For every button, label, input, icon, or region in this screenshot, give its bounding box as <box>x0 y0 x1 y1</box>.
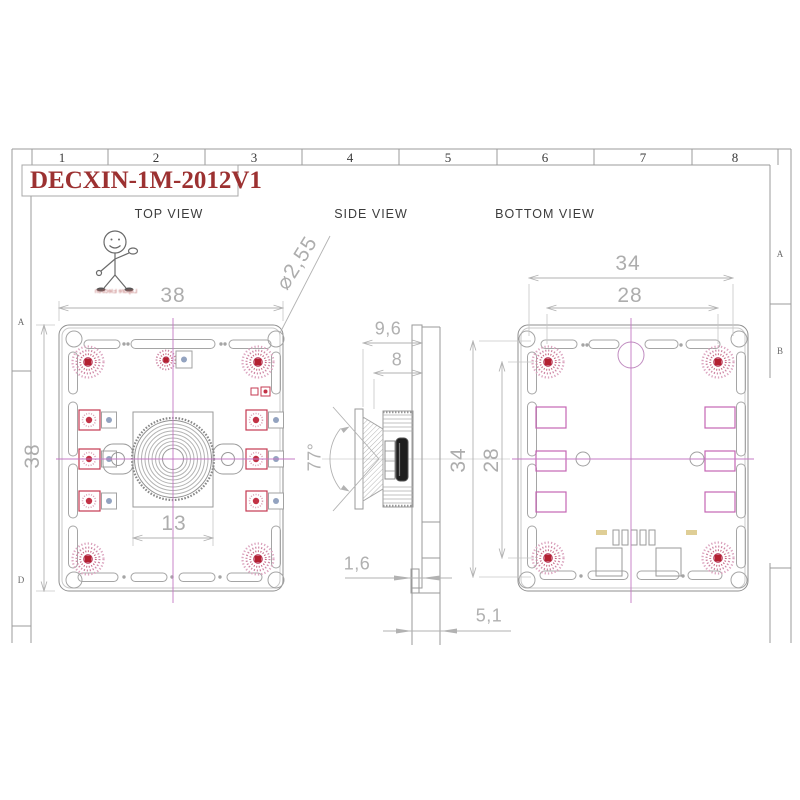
dim-lens-depth: 8 <box>392 350 403 371</box>
sheet-frame <box>12 149 791 643</box>
mount-pad <box>243 544 274 575</box>
dim-pcb-thickness: 1,6 <box>344 554 371 575</box>
dim-fov: 77° <box>305 443 326 472</box>
dim-bottom-outer-h: 34 <box>615 252 640 276</box>
engineering-drawing <box>0 0 800 800</box>
margin-row-a-left: A <box>18 317 25 327</box>
dim-lens-mount-width: 13 <box>161 512 186 536</box>
dim-total-depth: 9,6 <box>375 319 402 340</box>
ruler-col-1: 1 <box>59 150 66 166</box>
top-view-label: TOP VIEW <box>135 207 204 221</box>
side-view-label: SIDE VIEW <box>334 207 408 221</box>
ruler-col-5: 5 <box>445 150 452 166</box>
ruler-col-8: 8 <box>732 150 739 166</box>
mount-pad <box>243 347 274 378</box>
dim-bottom-inner-h: 28 <box>617 284 642 308</box>
silkscreen-mark <box>596 530 607 535</box>
ruler-col-6: 6 <box>542 150 549 166</box>
dim-bottom-inner-v: 28 <box>480 447 504 472</box>
bottom-view-label: BOTTOM VIEW <box>495 207 595 221</box>
connector-footprint <box>596 530 681 576</box>
ruler-col-4: 4 <box>347 150 354 166</box>
dim-board-height: 38 <box>21 443 45 468</box>
margin-row-a-right: A <box>777 249 784 259</box>
lens-cone <box>363 417 383 501</box>
watermark-caption: Lapure Electron <box>95 289 137 295</box>
bottom-view-drawing <box>473 278 754 603</box>
stick-figure-icon <box>97 231 138 292</box>
sensor-connector <box>396 438 408 481</box>
part-number: DECXIN-1M-2012V1 <box>30 167 262 195</box>
dim-board-width: 38 <box>160 284 185 308</box>
margin-row-d-left: D <box>18 575 25 585</box>
ruler-col-3: 3 <box>251 150 258 166</box>
drawing-sheet: DECXIN-1M-2012V1 1 2 3 4 5 6 7 8 A D A B… <box>0 0 800 800</box>
bottom-pads <box>536 407 735 512</box>
side-view-drawing <box>322 325 511 645</box>
ruler-col-7: 7 <box>640 150 647 166</box>
dim-connector-depth: 5,1 <box>476 606 503 627</box>
ruler-col-2: 2 <box>153 150 160 166</box>
silkscreen-mark <box>686 530 697 535</box>
dim-bottom-outer-v: 34 <box>447 447 471 472</box>
margin-row-b-right: B <box>777 346 783 356</box>
